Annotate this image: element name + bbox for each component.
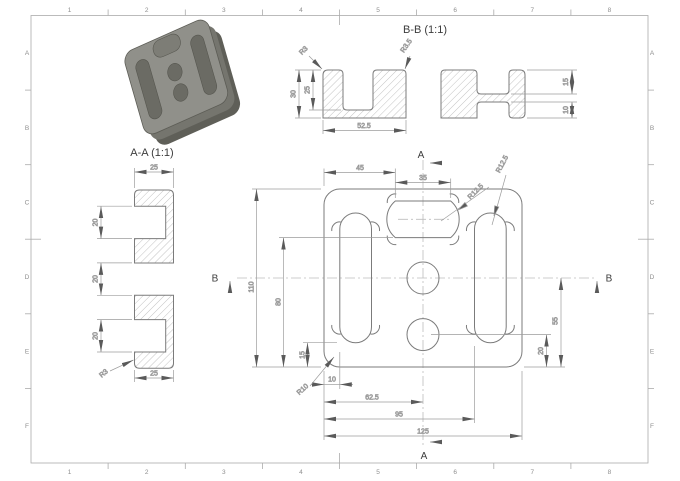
row-label: B [25,125,29,132]
section-aa-title: A-A (1:1) [130,147,173,159]
row-label: C [25,200,30,207]
radius-text: R3.5 [400,38,414,54]
row-label: D [25,274,30,281]
drawing-sheet: 1 2 3 4 5 6 7 8 1 2 3 4 5 6 7 8 A B C D … [0,0,680,481]
col-label: 3 [222,469,226,476]
plan-dim-hole-height: 20 [431,335,551,367]
bb-radius-corner: R3 [298,45,322,69]
section-aa-view: A-A (1:1) 25 25 20 20 20 [93,147,174,382]
row-label: E [650,349,655,356]
radius-text: R12.5 [495,154,510,174]
section-mark-a-top: A [418,150,441,163]
section-mark-a-bottom: A [421,442,441,462]
plan-dim-pocket-offset: 45 [324,165,395,198]
section-letter: A [418,150,425,161]
dim-text: 20 [93,219,100,227]
dim-text: 20 [93,332,100,340]
aa-upper-solid [135,190,174,263]
dim-text: 25 [305,86,312,94]
radius-text: R3 [98,368,109,379]
row-label: A [650,50,655,57]
row-label: D [650,274,655,281]
dim-text: 62.5 [365,395,379,402]
section-mark-b-right: B [597,274,613,292]
section-bb-title: B-B (1:1) [403,24,447,36]
section-letter: A [421,451,428,462]
row-label: C [650,200,655,207]
row-label: A [25,50,30,57]
dim-text: 35 [419,175,427,182]
col-label: 4 [299,7,303,14]
row-label: B [650,125,654,132]
col-label: 7 [530,7,534,14]
section-bb-view: B-B (1:1) 30 25 52.5 15 10 [291,24,578,134]
col-label: 4 [299,469,303,476]
dim-text: 15 [300,351,307,359]
col-label: 7 [530,469,534,476]
plan-dim-to-center: 62.5 [324,395,423,403]
cad-drawing: 1 2 3 4 5 6 7 8 1 2 3 4 5 6 7 8 A B C D … [0,0,680,481]
dim-text: 20 [93,275,100,283]
aa-dim-notch-bottom: 20 [93,320,133,352]
row-label: F [650,423,654,430]
col-label: 2 [145,469,149,476]
dim-text: 95 [395,412,403,419]
dim-text: 15 [563,78,570,86]
frame-row-labels-right: A B C D E F [650,50,655,430]
col-label: 5 [376,7,380,14]
dim-text: 20 [538,347,545,355]
dim-text: 10 [563,106,570,114]
aa-radius-corner: R3 [98,360,133,379]
section-mark-b-left: B [212,274,230,292]
bb-left-solid [323,70,406,118]
col-label: 1 [68,469,72,476]
dim-text: 125 [417,429,429,436]
bb-radius-fillet: R3.5 [400,38,414,69]
frame-column-labels-bottom: 1 2 3 4 5 6 7 8 [68,469,612,476]
section-letter: B [606,274,613,285]
aa-dim-gap-middle: 20 [93,263,133,295]
dim-text: 52.5 [357,123,371,130]
radius-text: R10 [296,383,310,397]
plan-radius-slot: R12.5 [492,154,510,225]
row-label: F [25,423,29,430]
plan-dim-slot-bottom: 15 [300,343,338,367]
dim-text: 110 [249,281,256,292]
col-label: 8 [608,7,612,14]
radius-text: R3 [298,45,309,56]
frame-row-labels-left: A B C D E F [25,50,30,430]
row-label: E [25,349,30,356]
section-letter: B [212,274,219,285]
col-label: 1 [68,7,72,14]
aa-dim-width-top: 25 [135,165,174,189]
aa-dim-width-bottom: 25 [135,370,174,382]
dim-text: 10 [328,377,336,384]
col-label: 5 [376,469,380,476]
dim-text: 80 [276,298,283,306]
dim-text: 30 [291,90,298,98]
col-label: 2 [145,7,149,14]
iso-view [122,13,242,152]
dim-text: 45 [356,165,364,172]
dim-text: 25 [150,165,158,172]
aa-lower-solid [135,295,174,368]
dim-text: 25 [150,371,158,378]
col-label: 6 [453,7,457,14]
plan-view: A A B B 45 35 110 [212,150,613,462]
col-label: 8 [608,469,612,476]
bb-dim-to-hole: 52.5 [323,120,406,134]
aa-dim-notch-top: 20 [93,206,133,238]
plan-dim-pocket-bottom: 80 [276,238,394,367]
col-label: 3 [222,7,226,14]
dim-text: 55 [553,317,560,325]
col-label: 6 [453,469,457,476]
